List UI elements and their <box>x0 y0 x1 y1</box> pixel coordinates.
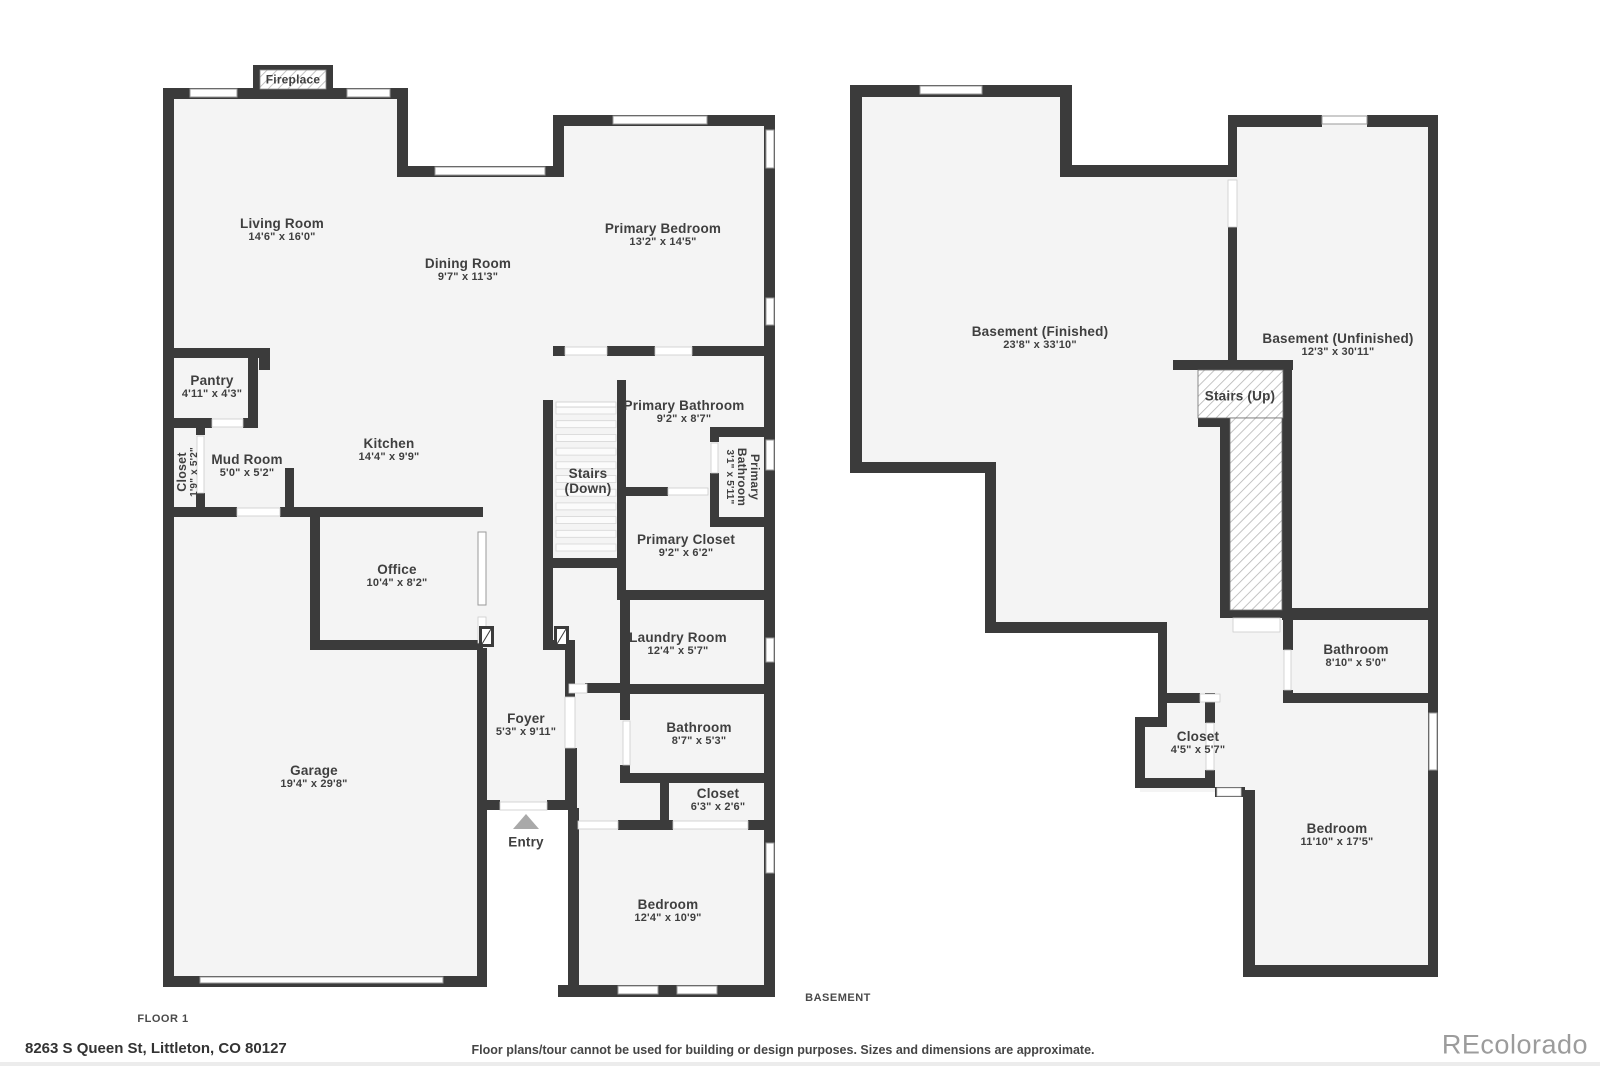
room-label-pantry: Pantry 4'11" x 4'3" <box>182 373 242 401</box>
room-label-bathroom: Bathroom 8'7" x 5'3" <box>666 720 731 748</box>
entry-arrow-icon <box>513 814 539 829</box>
room-label-basement-bathroom: Bathroom 8'10" x 5'0" <box>1323 642 1388 670</box>
room-name: Fireplace <box>266 73 321 88</box>
floorplan-page: Fireplace Living Room 14'6" x 16'0" Dini… <box>0 0 1600 1066</box>
room-label-bedroom: Bedroom 12'4" x 10'9" <box>634 897 701 925</box>
room-label-basement-bedroom: Bedroom 11'10" x 17'5" <box>1301 821 1374 849</box>
floor1-tag: FLOOR 1 <box>137 1013 188 1025</box>
room-label-primary-bathroom-wc: Primary Bathroom 3'1" x 5'11" <box>723 448 761 506</box>
room-label-primary-closet: Primary Closet 9'2" x 6'2" <box>637 532 735 560</box>
room-label-dining-room: Dining Room 9'7" x 11'3" <box>425 256 511 284</box>
disclaimer-text: Floor plans/tour cannot be used for buil… <box>471 1043 1094 1057</box>
room-label-primary-bathroom: Primary Bathroom 9'2" x 8'7" <box>624 398 745 426</box>
room-label-basement-unfinished: Basement (Unfinished) 12'3" x 30'11" <box>1262 331 1413 359</box>
room-label-basement-finished: Basement (Finished) 23'8" x 33'10" <box>972 324 1109 352</box>
room-label-stairs-down: Stairs (Down) <box>565 466 612 496</box>
room-label-primary-bedroom: Primary Bedroom 13'2" x 14'5" <box>605 221 721 249</box>
room-label-basement-closet: Closet 4'5" x 5'7" <box>1171 729 1226 757</box>
room-label-foyer: Foyer 5'3" x 9'11" <box>496 711 556 739</box>
room-label-kitchen: Kitchen 14'4" x 9'9" <box>359 436 420 464</box>
room-label-entry: Entry <box>508 835 544 850</box>
room-label-office: Office 10'4" x 8'2" <box>367 562 428 590</box>
room-label-closet-left: Closet 1'9" x 5'2" <box>175 447 201 497</box>
garage-door <box>200 977 443 983</box>
bottom-edge-strip <box>0 1062 1600 1066</box>
room-label-closet-hall: Closet 6'3" x 2'6" <box>691 786 746 814</box>
property-address: 8263 S Queen St, Littleton, CO 80127 <box>25 1040 287 1057</box>
room-label-laundry-room: Laundry Room 12'4" x 5'7" <box>629 630 727 658</box>
recolorado-watermark: REcolorado <box>1442 1030 1588 1061</box>
entry-opening <box>500 802 547 810</box>
room-label-mud-room: Mud Room 5'0" x 5'2" <box>211 452 282 480</box>
floorplan-drawing <box>0 0 1600 1066</box>
basement-tag: BASEMENT <box>805 992 871 1004</box>
room-label-stairs-up: Stairs (Up) <box>1205 389 1275 404</box>
room-label-fireplace: Fireplace <box>266 73 321 88</box>
room-label-garage: Garage 19'4" x 29'8" <box>280 763 347 791</box>
room-label-living-room: Living Room 14'6" x 16'0" <box>240 216 324 244</box>
